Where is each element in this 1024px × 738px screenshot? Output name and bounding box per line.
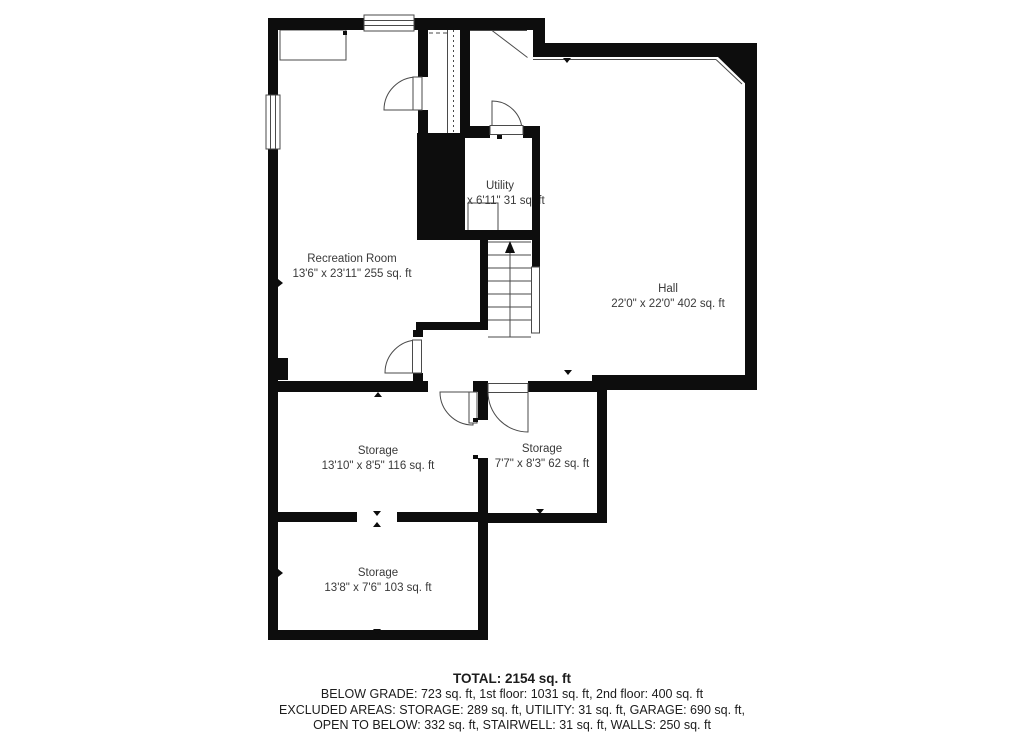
tick-mark (473, 455, 478, 459)
room-dims-storage-2: 7'7" x 8'3" 62 sq. ft (495, 458, 590, 470)
summary-line-2: EXCLUDED AREAS: STORAGE: 289 sq. ft, UTI… (0, 703, 1024, 719)
room-dims-hall: 22'0" x 22'0" 402 sq. ft (611, 298, 725, 310)
window-frame (364, 15, 414, 31)
room-dims-storage-1: 13'10" x 8'5" 116 sq. ft (322, 460, 436, 472)
room-dims-recreation: 13'6" x 23'11" 255 sq. ft (292, 268, 412, 280)
summary-total: TOTAL: 2154 sq. ft (0, 671, 1024, 687)
door-leaf (413, 340, 422, 373)
door-utility (490, 101, 523, 139)
wall-utility-bottom (465, 230, 540, 240)
wall-storage2-bottom (487, 513, 607, 523)
door-recroom-se (385, 340, 422, 373)
wall-hall-top (533, 43, 757, 57)
door-swing-arc (384, 77, 417, 110)
summary-line-3: OPEN TO BELOW: 332 sq. ft, STAIRWELL: 31… (0, 718, 1024, 734)
opening-storage1-door (428, 381, 473, 392)
utility-equipment (468, 203, 498, 233)
room-name-utility: Utility (486, 180, 514, 192)
door-leaf (413, 77, 422, 110)
tick-mark (278, 279, 283, 287)
wall-stair-west (480, 240, 488, 330)
floorplan-page: Recreation Room 13'6" x 23'11" 255 sq. f… (0, 0, 1024, 738)
tick-mark (373, 522, 381, 527)
stairs (488, 241, 531, 337)
tick-mark (278, 569, 283, 577)
floorplan-drawing: Recreation Room 13'6" x 23'11" 255 sq. f… (0, 0, 1024, 738)
wall-landing-top (416, 322, 487, 330)
window-frame (266, 95, 280, 149)
door-swing-arc (488, 392, 528, 432)
wall-utility-right (532, 126, 540, 267)
stair-railing (532, 267, 540, 333)
tick-mark (473, 418, 478, 422)
room-name-storage-3: Storage (358, 567, 398, 579)
wall-solid-core-mass (417, 133, 465, 240)
wall-stair-shaft-right (460, 28, 470, 138)
room-name-storage-2: Storage (522, 443, 562, 455)
room-name-hall: Hall (658, 283, 678, 295)
window-top (364, 15, 414, 31)
wall-recroom-east-upper (418, 18, 428, 133)
built-in-closet (280, 30, 346, 60)
wall-hall-bottom (592, 375, 757, 390)
closet-corner-dot (343, 31, 347, 35)
window-left (266, 95, 280, 149)
room-name-recreation: Recreation Room (307, 253, 396, 265)
wall-pilaster (276, 358, 288, 380)
wall-exterior-right (745, 43, 757, 390)
area-summary: TOTAL: 2154 sq. ft BELOW GRADE: 723 sq. … (0, 671, 1024, 734)
tick-mark (374, 392, 382, 397)
door-leaf (490, 126, 523, 135)
door-hinge-dot (497, 135, 502, 139)
door-storage-1 (440, 392, 477, 425)
wall-storage2-right (597, 390, 607, 523)
opening-storage1-storage2-pass (478, 420, 488, 458)
room-name-storage-1: Storage (358, 445, 398, 457)
door-recroom-top (384, 77, 422, 110)
tick-mark (564, 370, 572, 375)
tick-mark (563, 58, 571, 63)
door-leaf (488, 384, 528, 393)
door-storage-2 (488, 384, 528, 433)
door-swing-arc (440, 392, 473, 425)
stair-direction-arrow-head (505, 241, 515, 253)
hall-corner-diagonal-line (492, 31, 528, 58)
summary-line-1: BELOW GRADE: 723 sq. ft, 1st floor: 1031… (0, 687, 1024, 703)
room-dims-storage-3: 13'8" x 7'6" 103 sq. ft (324, 582, 432, 594)
